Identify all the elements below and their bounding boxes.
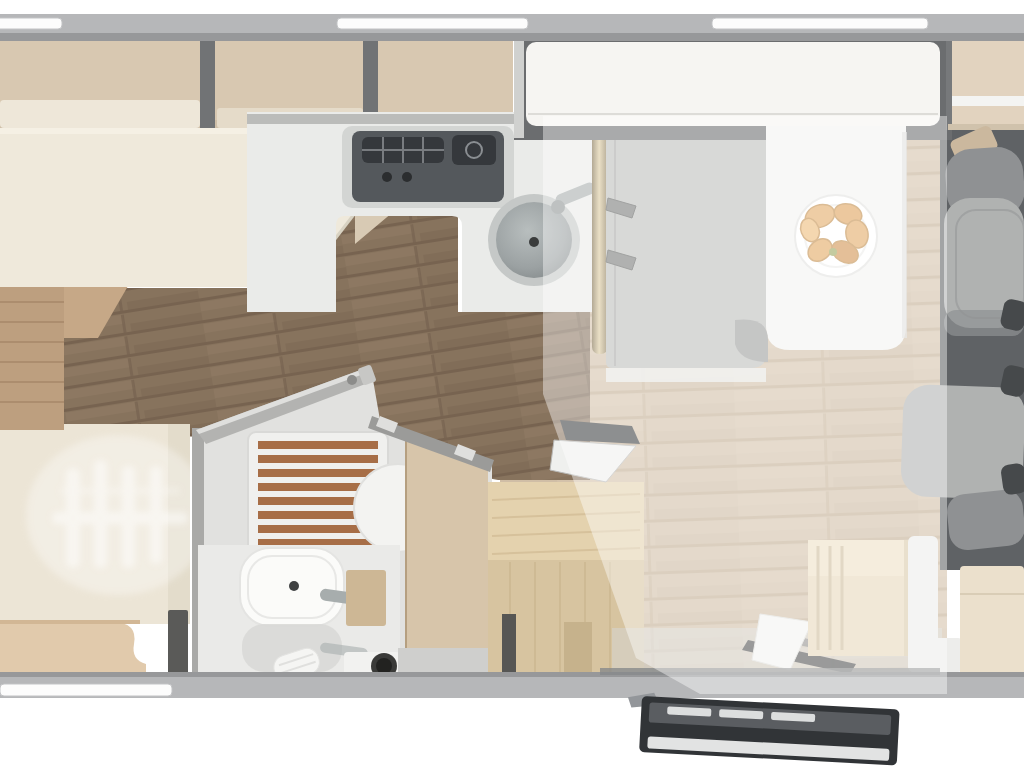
cab-overhead-seam [946,36,952,130]
top-window-1 [0,18,62,29]
cab-overhead-shelf [948,36,1024,130]
hob-knob-2 [402,172,412,182]
vanity-tan-box [346,570,386,626]
basin-drain [289,581,299,591]
floorplan-render [0,0,1024,768]
bottom-window-1 [0,684,172,696]
top-window-3 [712,18,928,29]
top-window-2 [337,18,528,29]
cab-overhead-gap [948,96,1024,106]
side-strip [0,286,64,430]
outside-top [0,0,1024,14]
sink-drain [529,237,539,247]
door-handle-icon [347,375,357,385]
screenshot-canvas [0,0,1024,768]
burner-grate-right [452,135,496,165]
drain-hole [376,658,392,674]
garage-bench-edge [0,620,140,624]
front-cabinet [960,566,1024,678]
top-wall-edge [0,33,1024,41]
locker-divider-1 [200,30,215,128]
hob-knob-1 [382,172,392,182]
hob [342,126,514,208]
bed-frame-highlight [514,34,524,138]
bathroom-beige-panel [406,436,488,662]
locker-front-left [0,100,200,128]
passenger-backrest [945,488,1024,552]
ghost-bikes-icon [26,435,210,595]
garage [0,424,210,686]
vanity [198,545,400,688]
